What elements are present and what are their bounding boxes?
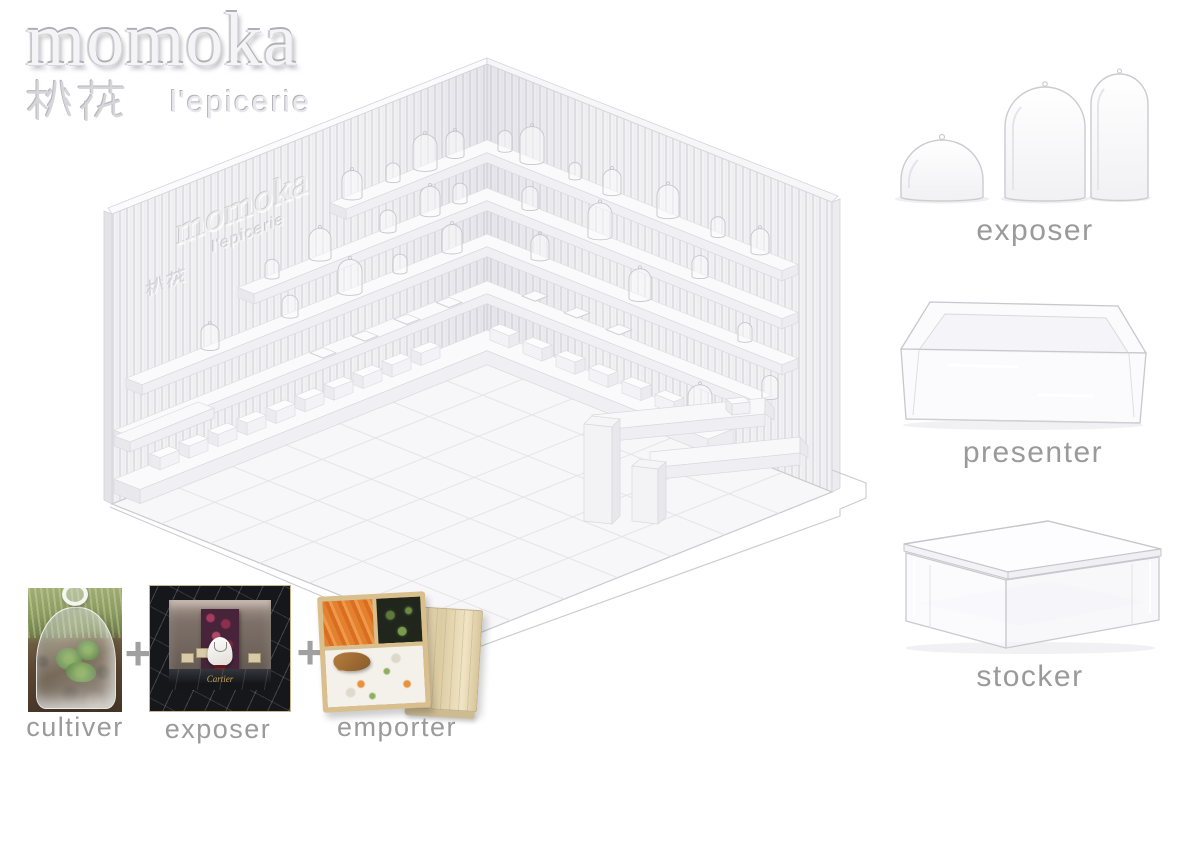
concept-board: momoka l'epicerie momoka l'epicerie (0, 0, 1200, 844)
product-label-stocker: stocker (900, 660, 1160, 694)
concept-label-exposer: exposer (148, 714, 288, 745)
exposer-photo: Cartier (149, 585, 291, 712)
glass-cloche (36, 607, 117, 709)
brand-subtitle: l'epicerie (170, 84, 311, 120)
brand-cjk-taohua (26, 76, 126, 124)
bento-carrots (322, 599, 378, 646)
brand-logo: momoka l'epicerie (26, 2, 311, 124)
glass-cloche-domes-icon (893, 58, 1153, 206)
vitrine-interior: Cartier (169, 600, 271, 690)
product-label-presenter: presenter (903, 436, 1163, 470)
concept-label-emporter: emporter (327, 712, 467, 743)
plaque (248, 653, 261, 663)
emporter-photo-bento (317, 591, 431, 712)
acrylic-tray-icon (893, 293, 1153, 433)
plaque (181, 653, 194, 663)
vitrine-ledge: Cartier (169, 669, 271, 690)
concept-label-cultiver: cultiver (15, 712, 135, 743)
brand-title: momoka (26, 2, 311, 78)
bento-protein (333, 651, 371, 672)
acrylic-box-icon (890, 508, 1168, 658)
cultiver-photo (28, 588, 122, 712)
necklace-bust (208, 637, 233, 666)
vitrine-brand-text: Cartier (169, 669, 271, 691)
product-label-exposer: exposer (905, 214, 1165, 248)
bento-rolls (376, 597, 422, 644)
bento-rice (325, 641, 426, 708)
